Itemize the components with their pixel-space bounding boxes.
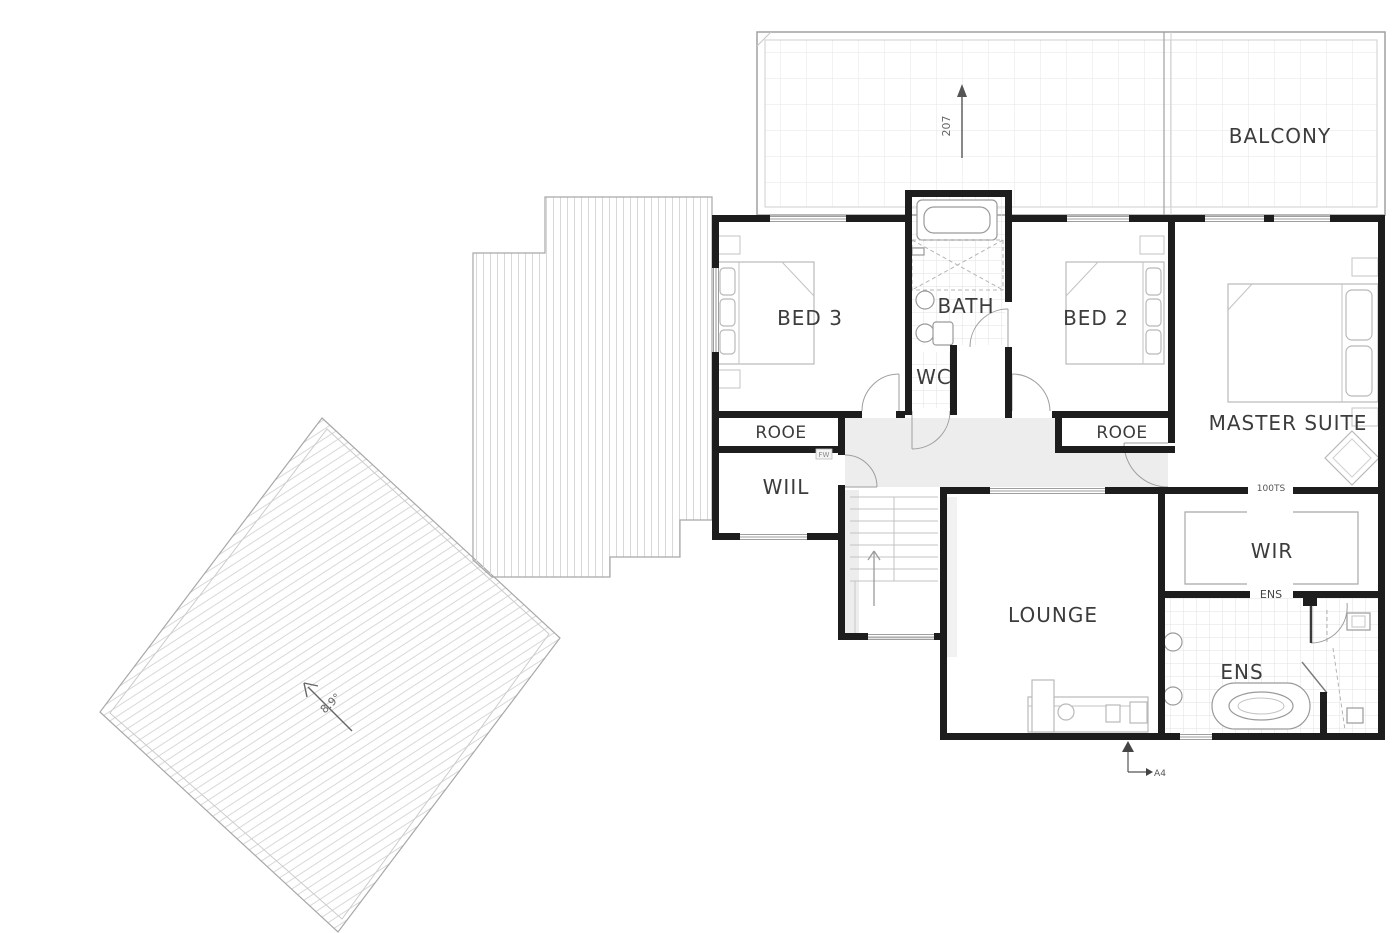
freestanding-bath-icon bbox=[1212, 683, 1310, 729]
floor-shadows bbox=[845, 418, 1168, 657]
bathtub-icon bbox=[917, 200, 997, 240]
room-label-bed3: BED 3 bbox=[777, 306, 843, 330]
room-label-linen: WIIL bbox=[763, 475, 810, 499]
room-label-lounge: LOUNGE bbox=[1008, 603, 1098, 627]
wir-opening-tag: 100TS bbox=[1257, 484, 1286, 494]
room-label-bath: BATH bbox=[937, 294, 994, 318]
ens-opening-tag: ENS bbox=[1260, 588, 1282, 601]
stairs bbox=[850, 497, 938, 638]
ens-toilet-icon bbox=[1347, 613, 1370, 630]
room-label-robe-bed2: ROOE bbox=[1096, 423, 1147, 443]
floor-plan: 8.9° 207 bbox=[0, 0, 1400, 933]
terrace-fall-label: 207 bbox=[940, 116, 953, 137]
sofa-icon bbox=[1028, 680, 1148, 732]
room-label-robe-bed3: ROOE bbox=[755, 423, 806, 443]
room-label-ens: ENS bbox=[1220, 660, 1263, 684]
stairs-up-arrow-icon bbox=[868, 551, 880, 606]
linen-door-tag: FW bbox=[819, 451, 830, 459]
section-marker: A4 bbox=[1122, 741, 1166, 779]
bed2-bed-icon bbox=[1066, 236, 1164, 364]
room-label-wir: WIR bbox=[1251, 539, 1294, 563]
room-label-bed2: BED 2 bbox=[1063, 306, 1129, 330]
roof-hatch-upper bbox=[473, 197, 712, 577]
room-label-master-suite: MASTER SUITE bbox=[1209, 411, 1368, 435]
master-bed-icon bbox=[1228, 258, 1378, 426]
ottoman-icon bbox=[1325, 431, 1379, 485]
section-label: A4 bbox=[1154, 769, 1166, 779]
room-label-wc: WC bbox=[916, 365, 952, 389]
room-label-balcony: BALCONY bbox=[1229, 124, 1331, 148]
